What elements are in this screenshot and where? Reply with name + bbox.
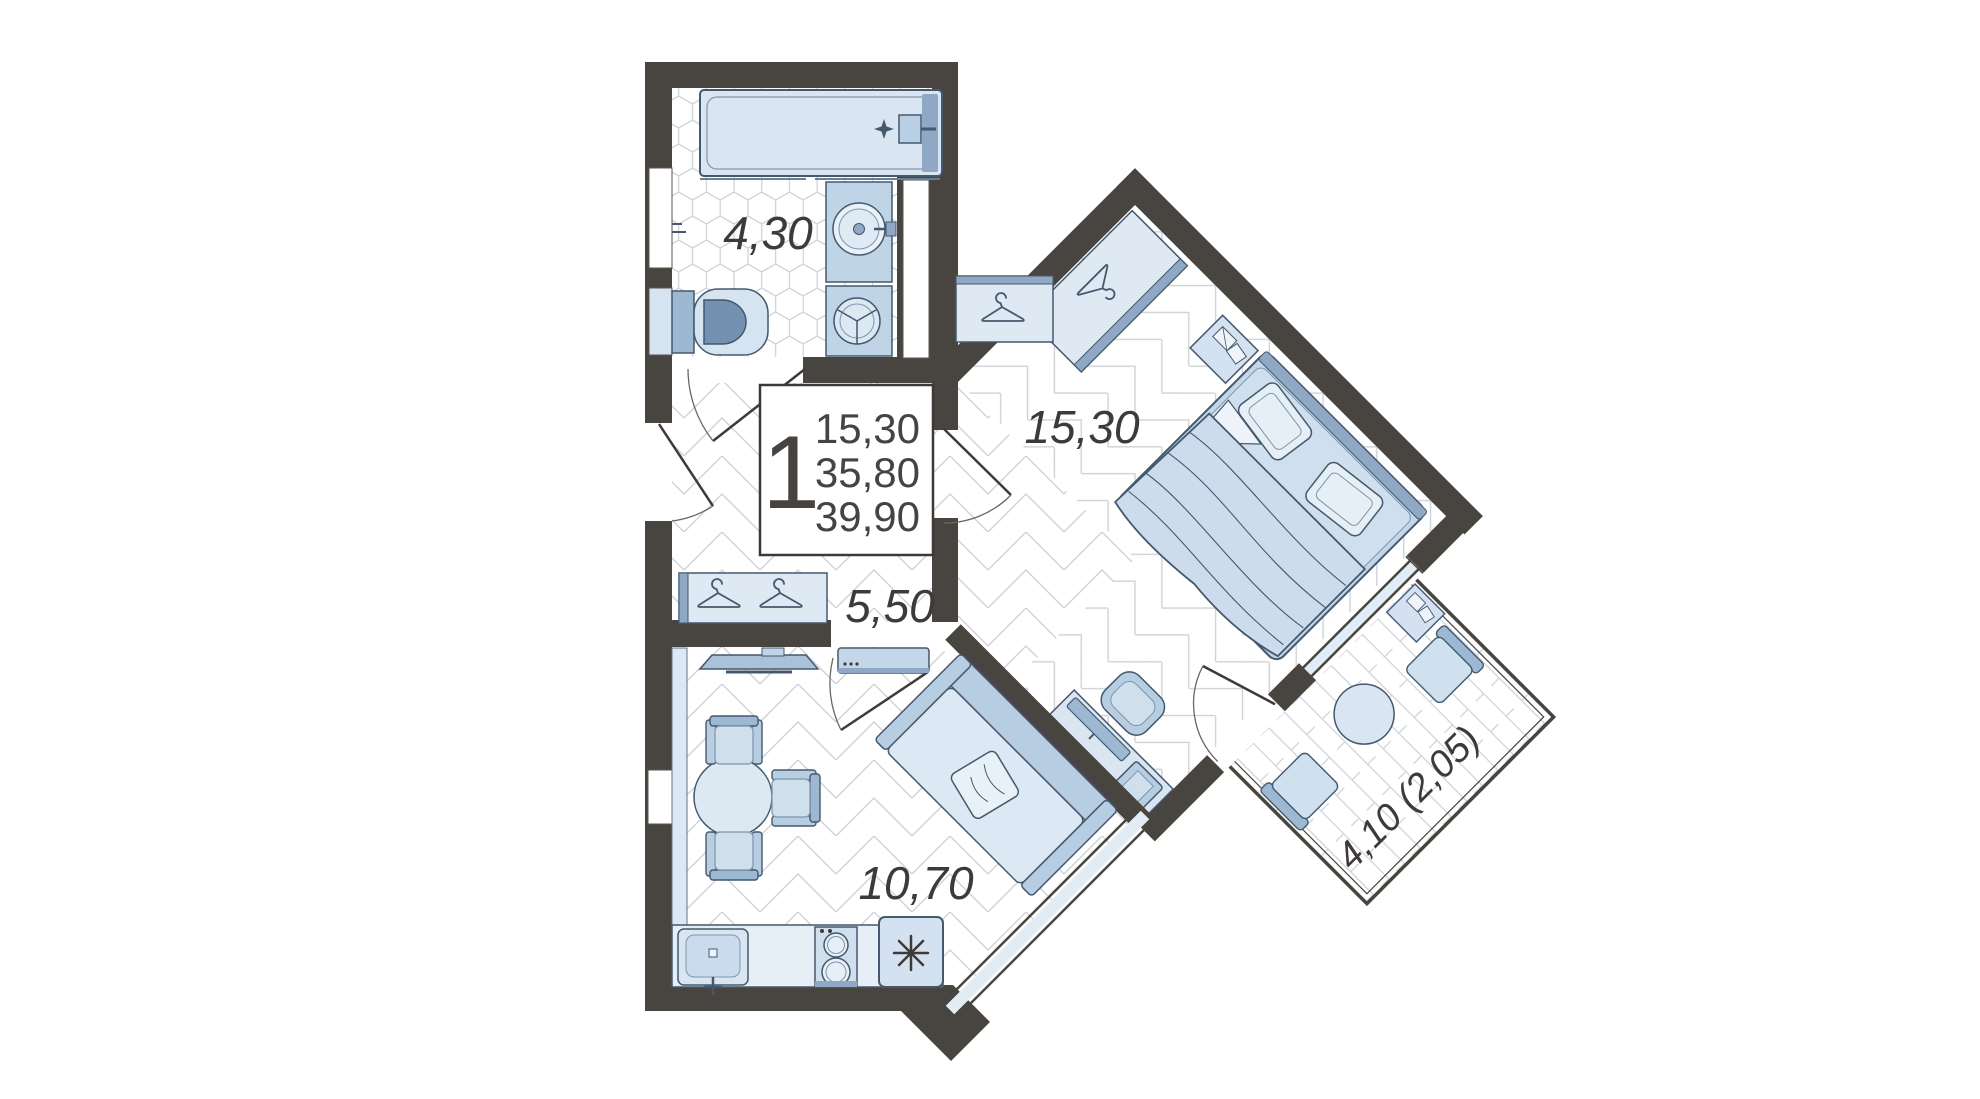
floor-plan-drawing: 4,10 (2,05) xyxy=(0,0,1980,1099)
duct-niche xyxy=(903,180,929,358)
dining-table xyxy=(694,758,772,836)
apartment-area-value: 35,80 xyxy=(815,449,920,496)
refrigerator xyxy=(879,917,943,987)
snowflake-icon xyxy=(894,936,928,970)
faucet xyxy=(886,222,896,236)
ac-console xyxy=(838,648,929,673)
wall-niche xyxy=(649,168,672,268)
kitchen-window xyxy=(648,770,673,824)
floor-plan-page: 4,10 (2,05) xyxy=(0,0,1980,1099)
kitchen-living-area-label: 10,70 xyxy=(858,857,974,909)
stove xyxy=(815,927,857,987)
bedroom-area-label: 15,30 xyxy=(1024,401,1140,453)
bathroom-sink xyxy=(826,182,896,282)
dining-chair xyxy=(772,770,820,826)
toilet xyxy=(649,288,768,355)
dining-chair xyxy=(706,832,762,880)
hallway-wardrobe xyxy=(679,573,827,623)
dining-chair xyxy=(706,716,762,764)
shower-mixer xyxy=(899,115,921,143)
info-box: 1 15,30 35,80 39,90 xyxy=(760,385,933,555)
total-area-value: 39,90 xyxy=(815,493,920,540)
living-area-value: 15,30 xyxy=(815,405,920,452)
kitchen-sink xyxy=(678,929,748,995)
bathtub xyxy=(700,90,942,179)
bathroom-area-label: 4,30 xyxy=(723,207,813,259)
vestibule-wardrobe xyxy=(956,276,1053,342)
hallway-area-label: 5,50 xyxy=(845,580,935,632)
room-count: 1 xyxy=(762,415,820,531)
window-sill-radiator xyxy=(672,648,687,947)
washing-machine xyxy=(826,286,892,356)
